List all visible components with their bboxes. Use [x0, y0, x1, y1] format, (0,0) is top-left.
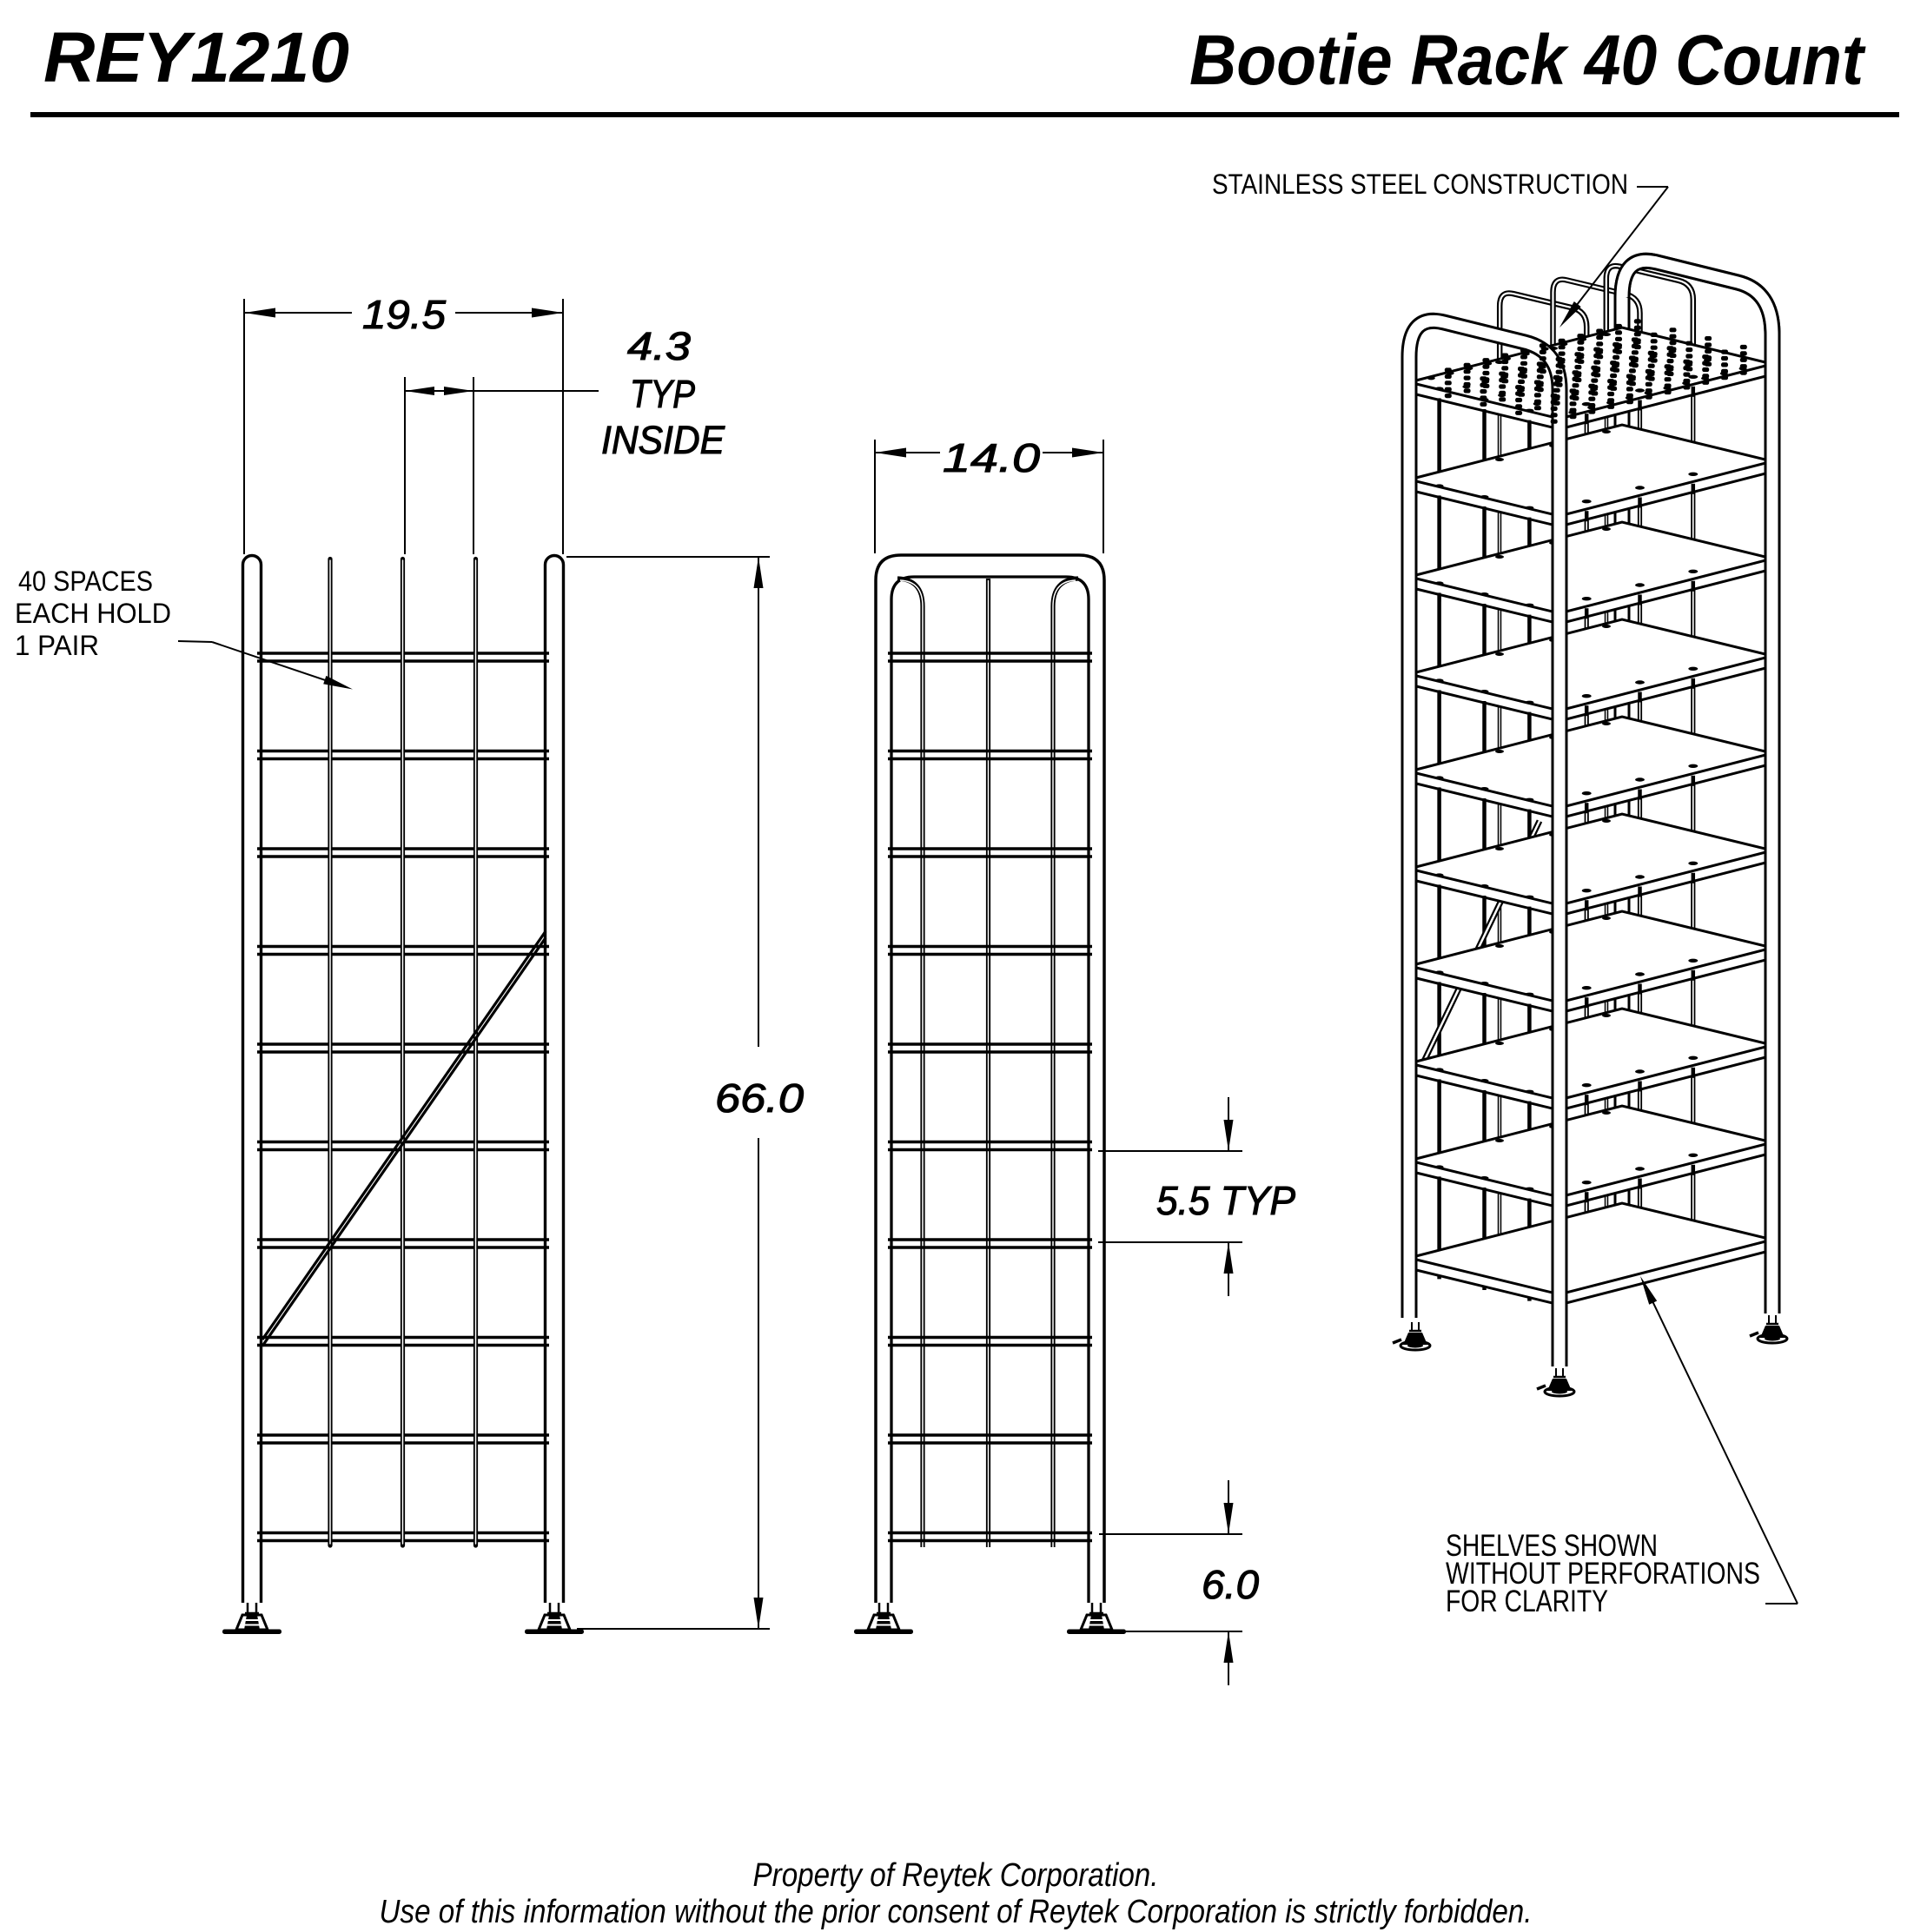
svg-text:Use of this information withou: Use of this information without the prio… — [380, 1894, 1533, 1930]
svg-text:4.3: 4.3 — [627, 324, 691, 368]
svg-text:66.0: 66.0 — [715, 1075, 804, 1121]
svg-text:Property of Reytek Corporation: Property of Reytek Corporation. — [753, 1857, 1159, 1894]
svg-text:EACH HOLD: EACH HOLD — [15, 598, 171, 629]
svg-text:FOR CLARITY: FOR CLARITY — [1446, 1585, 1608, 1618]
svg-text:REY1210: REY1210 — [43, 18, 349, 97]
svg-text:40 SPACES: 40 SPACES — [18, 566, 153, 597]
svg-text:Bootie Rack 40 Count: Bootie Rack 40 Count — [1189, 21, 1866, 100]
svg-text:STAINLESS STEEL CONSTRUCTION: STAINLESS STEEL CONSTRUCTION — [1212, 169, 1628, 200]
svg-text:5.5 TYP: 5.5 TYP — [1156, 1178, 1295, 1223]
svg-text:1 PAIR: 1 PAIR — [15, 630, 99, 661]
svg-text:14.0: 14.0 — [943, 435, 1041, 480]
svg-text:6.0: 6.0 — [1202, 1562, 1259, 1607]
svg-text:INSIDE: INSIDE — [601, 418, 725, 462]
svg-text:TYP: TYP — [630, 372, 695, 416]
svg-text:19.5: 19.5 — [362, 292, 446, 337]
